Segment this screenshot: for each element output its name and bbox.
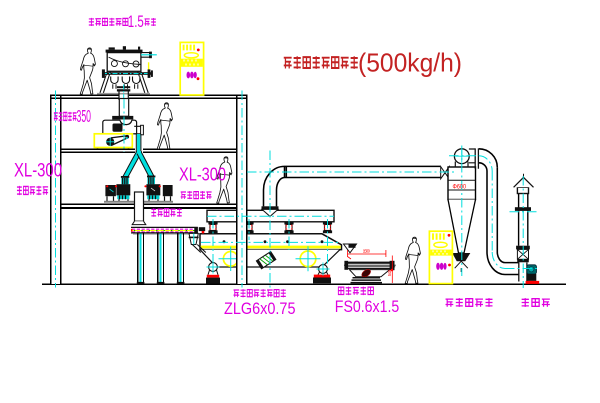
svg-text:Φ600: Φ600: [453, 184, 467, 191]
svg-text:XL-300: XL-300: [14, 160, 62, 181]
svg-text:1500: 1500: [363, 249, 371, 254]
svg-text:1.5: 1.5: [128, 13, 144, 31]
svg-text:350: 350: [77, 106, 92, 126]
svg-text:(500kg/h): (500kg/h): [358, 48, 462, 78]
svg-text:FS0.6x1.5: FS0.6x1.5: [335, 297, 400, 316]
svg-text:XL-300: XL-300: [179, 165, 226, 185]
svg-text:ZLG6x0.75: ZLG6x0.75: [224, 299, 296, 318]
